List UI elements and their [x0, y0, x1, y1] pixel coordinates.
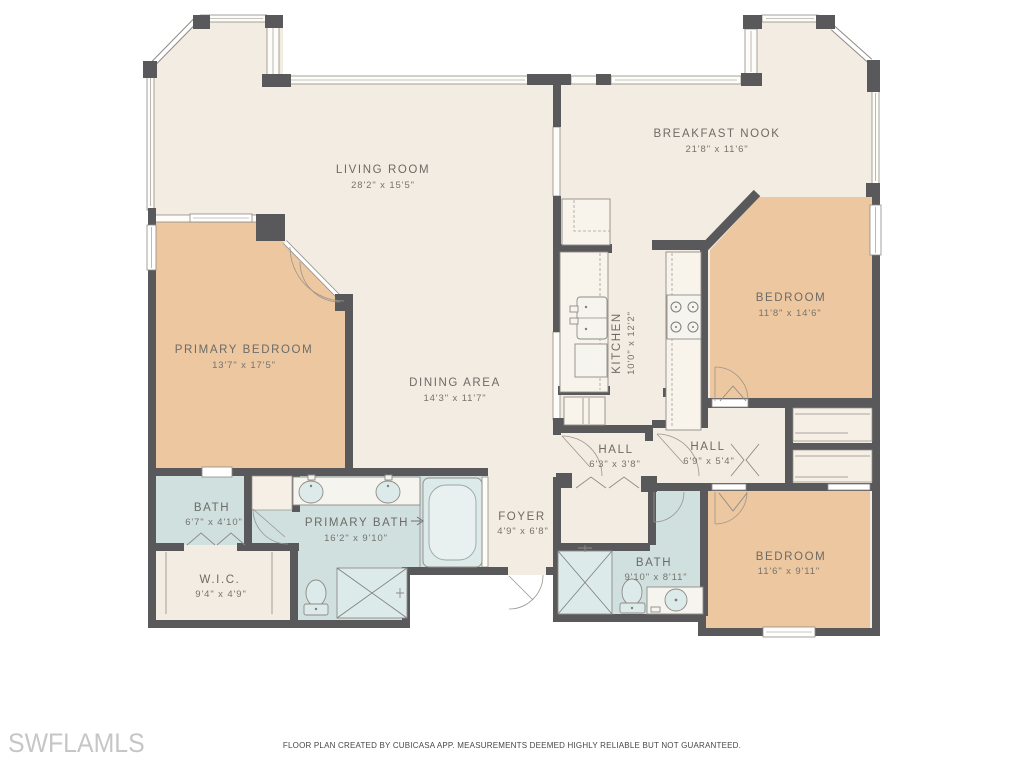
label-bath-a: BATH	[194, 502, 230, 514]
stove	[667, 295, 701, 339]
label-foyer: FOYER	[498, 511, 546, 523]
label-dining-area: DINING AREA	[409, 377, 501, 389]
label-primary-bath: PRIMARY BATH	[305, 517, 409, 529]
faucet-icon	[570, 318, 578, 324]
label-wic: W.I.C.	[200, 574, 241, 586]
dims-primary-bedroom: 13'7" x 17'5"	[212, 360, 276, 371]
toilet	[306, 580, 326, 606]
sink	[299, 481, 323, 503]
dims-hall-a: 6'3" x 3'8"	[589, 459, 640, 470]
dims-bedroom-se: 11'6" x 9'11"	[758, 566, 820, 577]
sink	[376, 481, 400, 503]
bath-a-alcove	[252, 476, 292, 510]
label-bedroom-ne: BEDROOM	[756, 292, 827, 304]
label-bedroom-se: BEDROOM	[756, 551, 827, 563]
dims-hall-b: 6'9" x 5'4"	[683, 456, 734, 467]
dims-bath-b: 9'10" x 8'11"	[624, 572, 687, 583]
kitchen-corner-counter	[562, 199, 610, 245]
floorplan-page: LIVING ROOM 28'2" x 15'5" BREAKFAST NOOK…	[0, 0, 1024, 768]
dims-living-room: 28'2" x 15'5"	[351, 180, 415, 191]
dims-kitchen: 10'0" x 12'2"	[626, 311, 637, 375]
dims-dining-area: 14'3" x 11'7"	[423, 393, 486, 404]
kitchen-fridge	[564, 397, 605, 425]
dims-bath-a: 6'7" x 4'10"	[185, 517, 243, 528]
faucet-icon	[570, 306, 578, 312]
disclaimer-text: FLOOR PLAN CREATED BY CUBICASA APP. MEAS…	[0, 741, 1024, 750]
label-bath-b: BATH	[636, 557, 672, 569]
label-hall-a: HALL	[598, 444, 633, 456]
label-breakfast-nook: BREAKFAST NOOK	[654, 128, 781, 140]
label-living-room: LIVING ROOM	[336, 164, 430, 176]
kitchen-right-counter	[666, 252, 701, 430]
dims-breakfast-nook: 21'8" x 11'6"	[685, 144, 748, 155]
dims-wic: 9'4" x 4'9"	[195, 589, 246, 600]
label-hall-b: HALL	[690, 441, 725, 453]
dims-foyer: 4'9" x 6'8"	[497, 526, 548, 537]
label-kitchen: KITCHEN	[611, 312, 623, 374]
dims-bedroom-ne: 11'8" x 14'6"	[758, 308, 821, 319]
label-primary-bedroom: PRIMARY BEDROOM	[175, 344, 314, 356]
floorplan-drawing: LIVING ROOM 28'2" x 15'5" BREAKFAST NOOK…	[0, 0, 1024, 768]
dims-primary-bath: 16'2" x 9'10"	[324, 533, 388, 544]
kitchen-appliance	[575, 344, 607, 377]
hall-closet-1	[793, 408, 872, 441]
